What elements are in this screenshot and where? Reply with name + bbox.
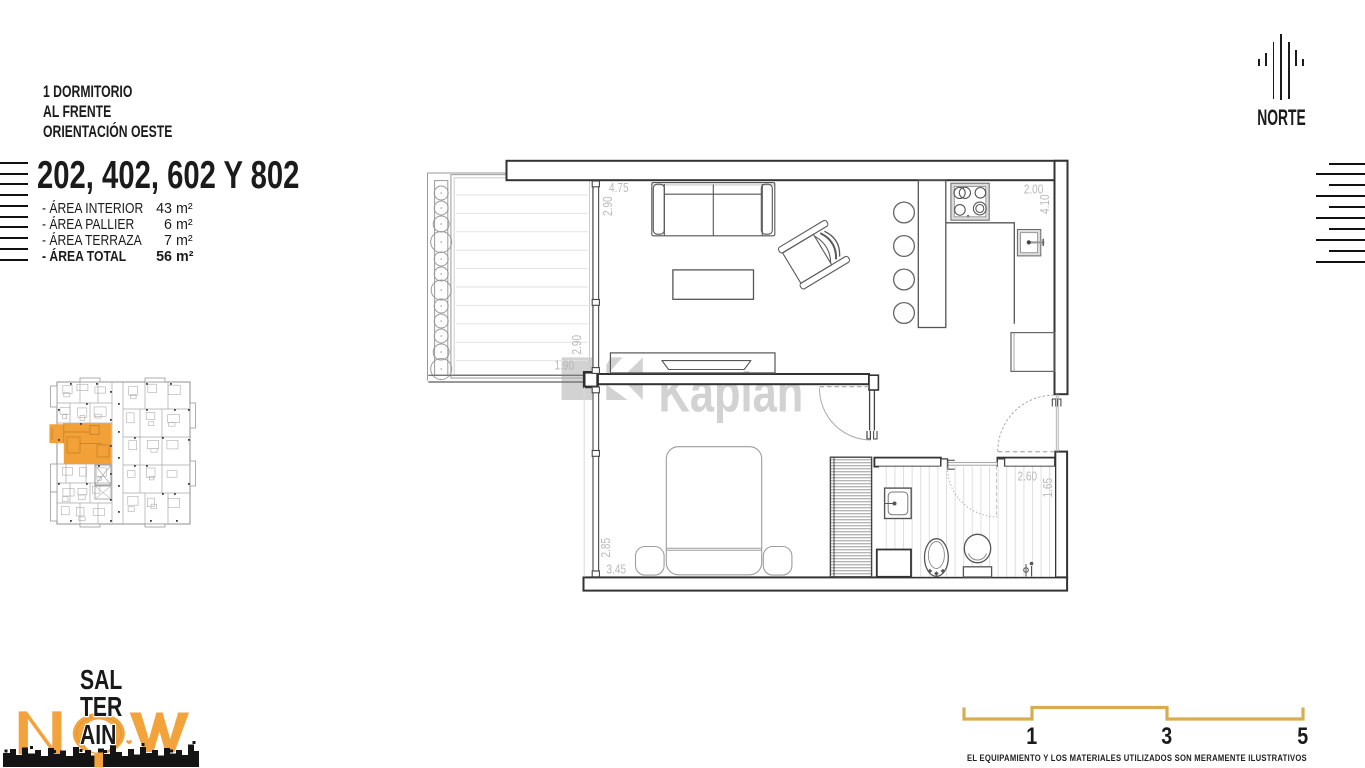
svg-text:4.10: 4.10: [1038, 194, 1053, 214]
svg-text:2.60: 2.60: [1018, 469, 1038, 484]
svg-text:1.65: 1.65: [1041, 478, 1056, 498]
svg-text:2.90: 2.90: [570, 335, 585, 355]
svg-text:2.85: 2.85: [599, 538, 614, 558]
svg-text:2.90: 2.90: [601, 196, 616, 216]
svg-text:Kaplan: Kaplan: [659, 361, 804, 423]
svg-text:3.45: 3.45: [607, 562, 627, 577]
svg-text:4.75: 4.75: [609, 181, 629, 196]
svg-text:1.90: 1.90: [555, 358, 575, 373]
